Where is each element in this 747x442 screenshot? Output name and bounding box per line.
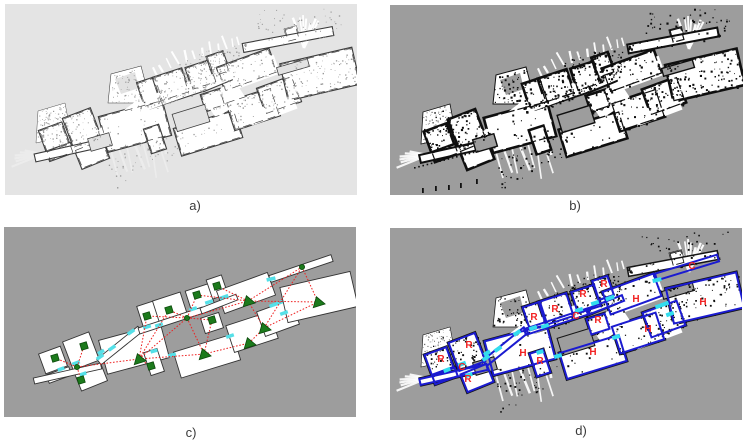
svg-text:R: R <box>530 312 538 323</box>
svg-text:H: H <box>519 348 526 359</box>
svg-text:R: R <box>437 354 445 365</box>
svg-text:H: H <box>644 324 651 335</box>
svg-text:c): c) <box>186 425 197 440</box>
svg-text:R: R <box>594 315 602 326</box>
svg-text:H: H <box>632 294 639 305</box>
svg-text:b): b) <box>569 198 581 213</box>
svg-text:R: R <box>600 279 608 290</box>
svg-text:R: R <box>579 289 587 300</box>
svg-text:R: R <box>551 304 559 315</box>
svg-text:R: R <box>465 340 473 351</box>
svg-text:R: R <box>464 374 472 385</box>
svg-text:H: H <box>589 347 596 358</box>
svg-text:d): d) <box>575 423 587 438</box>
svg-text:C: C <box>458 362 465 373</box>
svg-text:H: H <box>699 297 706 308</box>
svg-text:C: C <box>572 311 579 322</box>
svg-text:R: R <box>536 356 544 367</box>
svg-text:a): a) <box>189 198 201 213</box>
svg-text:C: C <box>688 261 695 272</box>
